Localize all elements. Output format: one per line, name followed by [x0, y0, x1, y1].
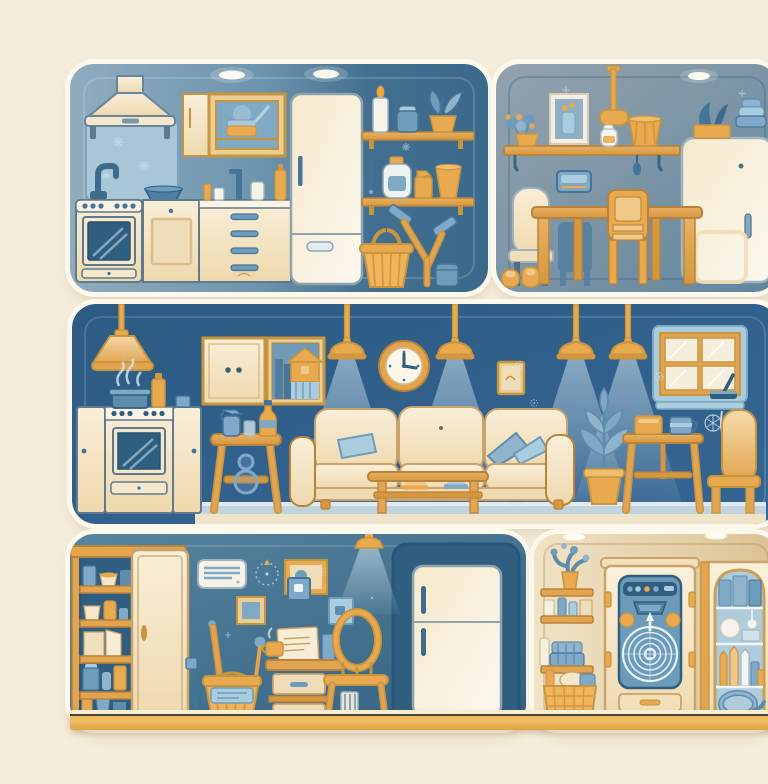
air-conditioner	[198, 560, 246, 588]
house-picture	[267, 338, 324, 404]
amber-cup	[436, 164, 461, 198]
ribbed-cup	[629, 116, 661, 146]
amber-books	[402, 485, 428, 490]
drawer-unit	[199, 200, 291, 282]
pantry-cabinet	[70, 546, 188, 721]
wall-cabinet	[203, 338, 265, 404]
floor-strip	[70, 710, 768, 730]
upper-cabinet-glass	[209, 94, 285, 156]
amber-box	[635, 416, 662, 434]
refrigerator	[291, 94, 362, 284]
display-cabinet	[701, 562, 768, 724]
upper-cabinet-door	[183, 94, 209, 156]
stove-with-cabinets	[77, 407, 201, 513]
blue-cup	[176, 396, 190, 407]
panel-kitchen	[70, 64, 488, 292]
panel-living	[72, 304, 768, 524]
panel-laundry	[534, 534, 768, 728]
washing-machine-cabinet	[601, 558, 699, 724]
cabinet-door-unit	[143, 200, 199, 282]
blue-books	[444, 484, 468, 489]
wall-clock	[379, 341, 429, 391]
panel-dining	[496, 64, 768, 292]
spray-bottle	[415, 171, 432, 198]
bowl	[145, 186, 182, 200]
sponge	[227, 126, 256, 136]
cabinet-door	[132, 550, 188, 720]
sparkle	[402, 143, 410, 151]
blue-wall-box	[557, 171, 591, 192]
washing-machine	[619, 576, 681, 688]
stove	[76, 200, 142, 282]
desk-cup	[266, 642, 283, 656]
blue-jar	[397, 106, 418, 132]
panel-utility	[70, 534, 526, 728]
refrigerator	[413, 566, 501, 721]
blue-canister	[436, 264, 458, 286]
illustration-home-panels	[40, 16, 768, 784]
drum-spiral	[623, 626, 677, 682]
ceiling-light	[680, 69, 718, 83]
blue-jug	[239, 455, 253, 469]
framed-picture	[550, 94, 588, 144]
folded-towels	[540, 638, 584, 666]
